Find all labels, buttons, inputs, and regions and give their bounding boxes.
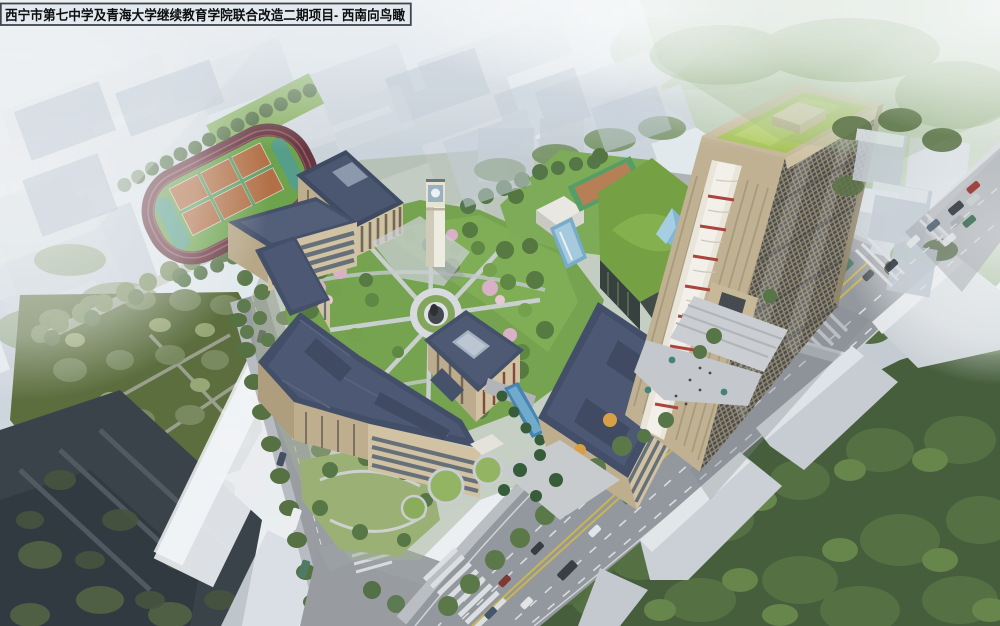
svg-text:西宁市第七中学及青海大学继续教育学院联合改造二期项目- 西南: 西宁市第七中学及青海大学继续教育学院联合改造二期项目- 西南向鸟瞰 [5, 7, 405, 23]
